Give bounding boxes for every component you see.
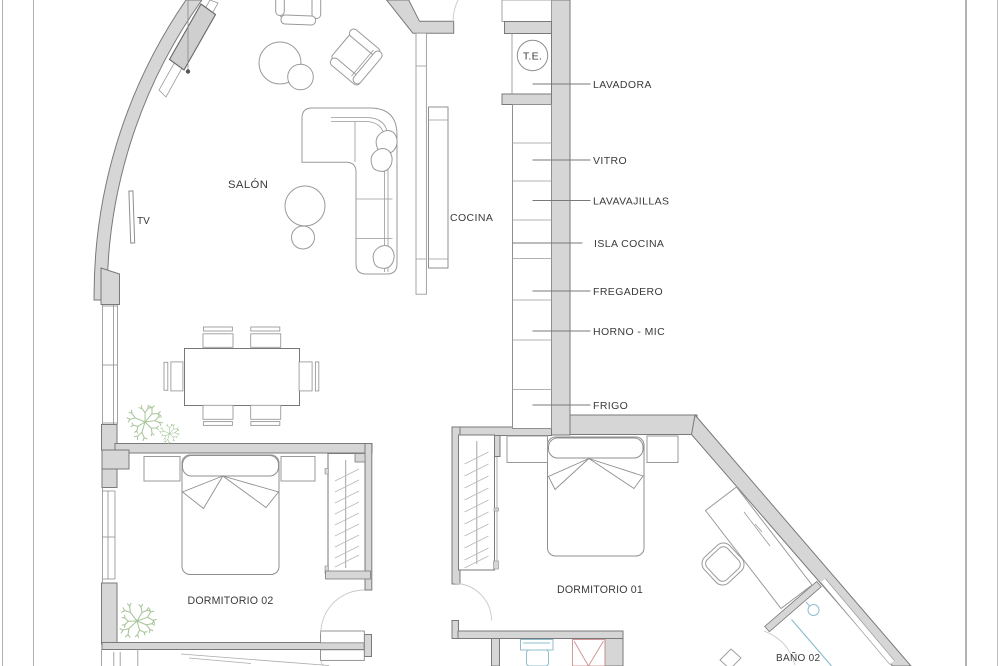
svg-text:SALÓN: SALÓN — [228, 178, 268, 191]
svg-text:COCINA: COCINA — [450, 212, 493, 224]
svg-text:DORMITORIO 02: DORMITORIO 02 — [188, 595, 274, 607]
svg-text:HORNO - MIC: HORNO - MIC — [593, 326, 665, 338]
svg-text:ISLA COCINA: ISLA COCINA — [594, 238, 664, 250]
svg-text:LAVAVAJILLAS: LAVAVAJILLAS — [593, 196, 669, 208]
svg-text:VITRO: VITRO — [593, 155, 627, 167]
svg-text:DORMITORIO 01: DORMITORIO 01 — [557, 584, 643, 596]
svg-text:T.E.: T.E. — [523, 51, 542, 63]
svg-text:TV: TV — [137, 216, 150, 227]
svg-text:LAVADORA: LAVADORA — [593, 79, 652, 91]
svg-text:FRIGO: FRIGO — [593, 400, 628, 412]
svg-text:FREGADERO: FREGADERO — [593, 286, 663, 298]
svg-text:BAÑO 02: BAÑO 02 — [776, 651, 820, 664]
